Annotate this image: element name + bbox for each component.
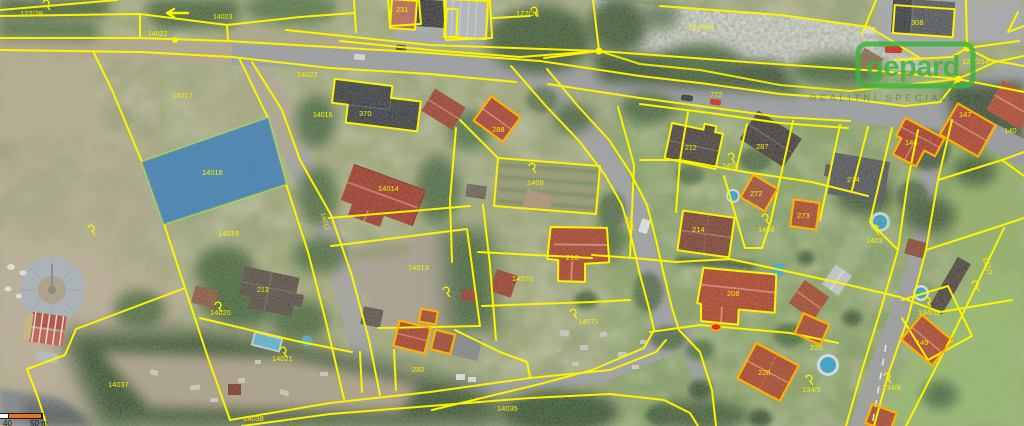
svg-text:REALITY: REALITY	[874, 80, 899, 86]
svg-text:231: 231	[396, 5, 409, 14]
svg-text:REALITNÍ SPECIALISTÉ: REALITNÍ SPECIALISTÉ	[810, 93, 985, 104]
svg-text:220: 220	[810, 343, 823, 352]
svg-text:14070: 14070	[512, 274, 533, 283]
svg-text:1409: 1409	[527, 178, 544, 187]
svg-text:gepard: gepard	[866, 51, 960, 83]
svg-text:14071: 14071	[578, 317, 599, 326]
svg-text:14023: 14023	[213, 14, 233, 21]
svg-text:288: 288	[492, 125, 505, 134]
svg-text:149: 149	[916, 338, 929, 347]
svg-text:1408: 1408	[722, 161, 739, 170]
svg-text:134/9: 134/9	[802, 385, 821, 394]
svg-text:50 m: 50 m	[30, 419, 48, 426]
svg-text:14014: 14014	[378, 184, 399, 193]
svg-text:212: 212	[685, 145, 697, 152]
svg-text:274: 274	[847, 175, 860, 184]
svg-text:218: 218	[566, 253, 579, 262]
svg-text:273: 273	[797, 211, 810, 220]
svg-text:134/12: 134/12	[918, 308, 941, 317]
svg-text:282: 282	[412, 365, 425, 374]
svg-text:127/214: 127/214	[962, 57, 989, 66]
svg-text:14013: 14013	[408, 263, 429, 272]
svg-text:14021: 14021	[272, 354, 293, 363]
svg-text:14018: 14018	[202, 168, 223, 177]
svg-text:214: 214	[692, 225, 705, 234]
svg-text:40: 40	[3, 419, 12, 426]
svg-text:14022: 14022	[297, 70, 318, 79]
svg-text:146: 146	[905, 138, 918, 147]
svg-text:287: 287	[756, 142, 769, 151]
svg-text:14038: 14038	[243, 414, 264, 423]
svg-text:14016: 14016	[313, 112, 333, 119]
svg-text:272: 272	[750, 189, 763, 198]
svg-text:14035: 14035	[497, 404, 518, 413]
svg-text:370: 370	[359, 109, 372, 118]
svg-text:134/8: 134/8	[882, 383, 901, 392]
svg-text:1406: 1406	[758, 225, 775, 234]
svg-text:308: 308	[911, 18, 924, 27]
svg-text:213: 213	[257, 287, 269, 294]
svg-text:14019: 14019	[218, 229, 239, 238]
svg-text:147: 147	[959, 110, 972, 119]
svg-text:140: 140	[1004, 126, 1017, 135]
svg-text:772: 772	[710, 90, 723, 99]
svg-text:14017: 14017	[172, 91, 193, 100]
svg-text:1403: 1403	[866, 236, 883, 245]
svg-text:208: 208	[727, 289, 740, 298]
svg-text:14022: 14022	[148, 31, 168, 38]
svg-text:127/28: 127/28	[20, 9, 43, 18]
svg-text:228: 228	[758, 368, 771, 377]
svg-text:14037: 14037	[108, 380, 129, 389]
svg-text:127/001: 127/001	[688, 23, 715, 32]
